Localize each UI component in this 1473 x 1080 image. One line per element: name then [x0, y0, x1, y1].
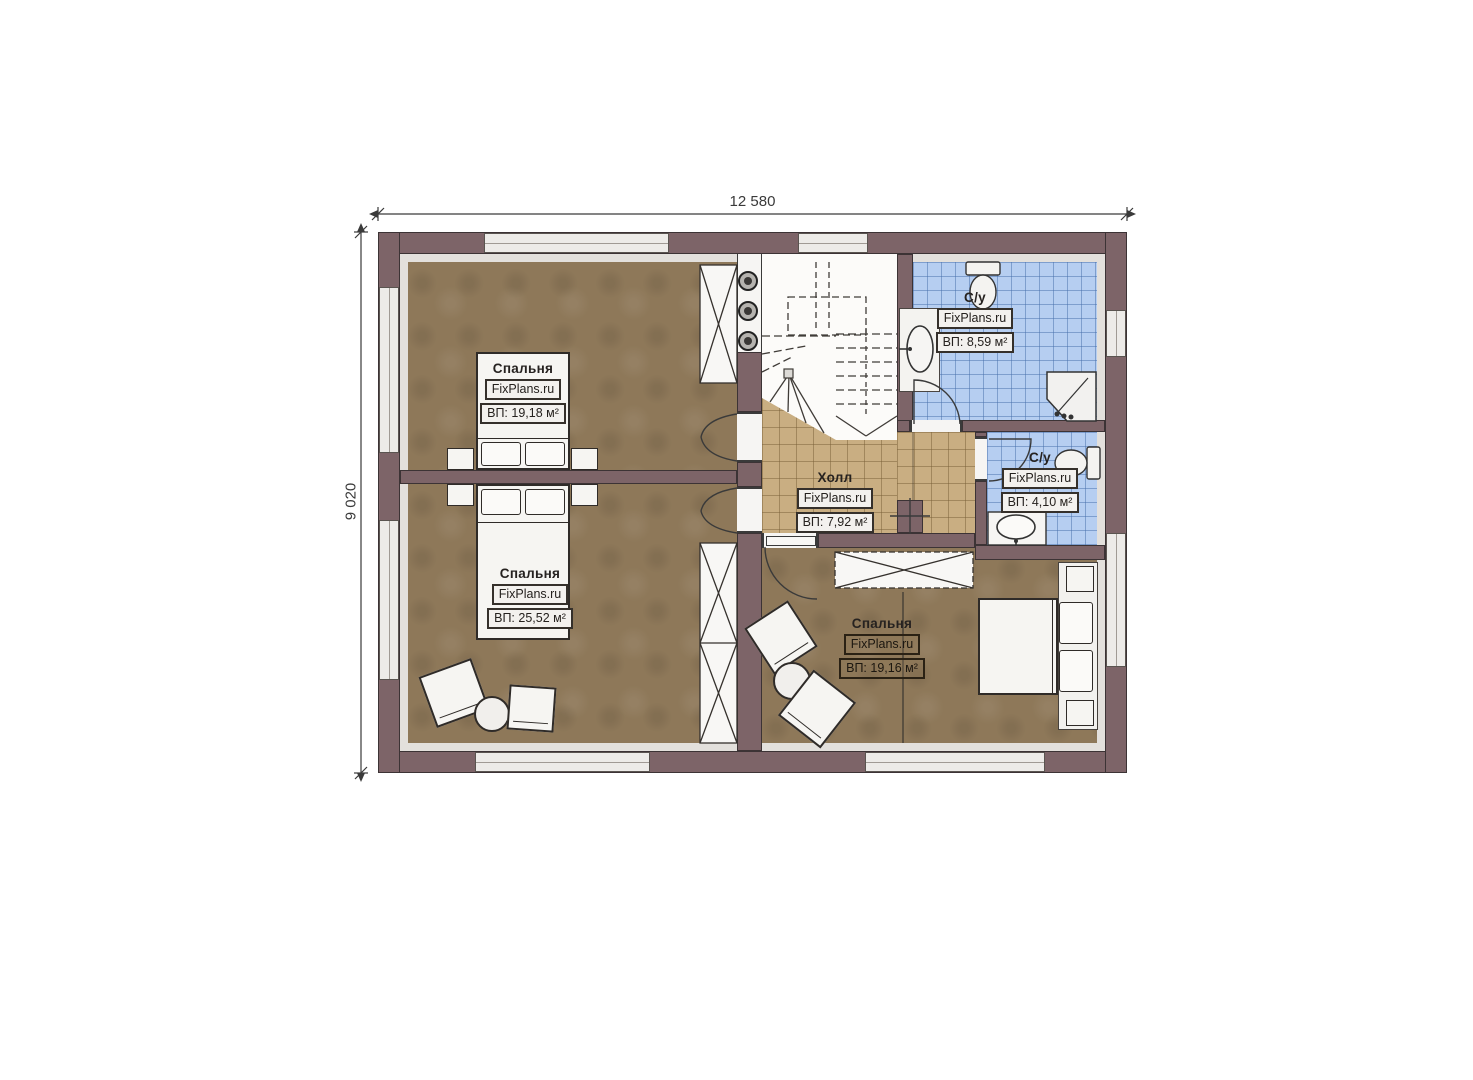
wall-bathroom-small-left-b [975, 481, 987, 545]
nightstand [1066, 700, 1094, 726]
pillow [1059, 602, 1093, 644]
label-bathroom-small: С/у FixPlans.ru ВП: 4,10 м² [992, 450, 1088, 513]
label-bedroom-right: Спальня FixPlans.ru ВП: 19,16 м² [828, 616, 936, 679]
wall-hall-bottom [818, 533, 975, 548]
room-title: С/у [964, 290, 986, 305]
dimension-width-label: 12 580 [690, 193, 815, 210]
window-right-upper [1106, 310, 1126, 357]
window-right-lower [1106, 533, 1126, 667]
label-bedroom-top-left: Спальня FixPlans.ru ВП: 19,18 м² [466, 361, 580, 424]
door-opening-bathroom-small [975, 437, 987, 481]
floor-plan-page: 12 580 9 020 Спальня FixPlans.ru ВП: 19,… [0, 0, 1473, 1080]
round-table [474, 696, 510, 732]
area-box: ВП: 19,18 м² [480, 403, 566, 424]
door-opening-bedroom-top-left [737, 412, 762, 462]
room-title: Спальня [493, 361, 553, 376]
brand-box: FixPlans.ru [937, 308, 1014, 329]
wall-hall-left-b [737, 462, 762, 487]
door-opening-bedroom-bottom-left [737, 487, 762, 533]
label-hall: Холл FixPlans.ru ВП: 7,92 м² [783, 470, 887, 533]
room-title: С/у [1029, 450, 1051, 465]
pillow [481, 442, 521, 466]
label-bedroom-bottom-left: Спальня FixPlans.ru ВП: 25,52 м² [472, 566, 588, 629]
window-top-left [484, 233, 669, 253]
pillow [525, 442, 565, 466]
nightstand [447, 484, 474, 506]
vent-niche [737, 254, 762, 352]
wall-bathroom-top-bottom-a [897, 420, 910, 432]
brand-box: FixPlans.ru [485, 379, 562, 400]
area-box: ВП: 19,16 м² [839, 658, 925, 679]
area-box: ВП: 8,59 м² [936, 332, 1015, 353]
room-title: Холл [817, 470, 852, 485]
nightstand [1066, 566, 1094, 592]
bed-right [978, 598, 1058, 695]
window-left-upper [379, 287, 399, 453]
window-left-lower [379, 520, 399, 680]
nightstand [571, 448, 598, 470]
pillow [1059, 650, 1093, 692]
wall-hall-left-a [737, 352, 762, 412]
nightstand [571, 484, 598, 506]
pillow [525, 489, 565, 515]
window-top-center [798, 233, 868, 253]
wall-bathroom-top-bottom-b [962, 420, 1105, 432]
brand-box: FixPlans.ru [1002, 468, 1079, 489]
window-bottom-right [865, 752, 1045, 772]
door-leaf-bedroom-right [766, 536, 816, 546]
brand-box: FixPlans.ru [844, 634, 921, 655]
window-bottom-left [475, 752, 650, 772]
label-bathroom-top: С/у FixPlans.ru ВП: 8,59 м² [925, 290, 1025, 353]
area-box: ВП: 25,52 м² [487, 608, 573, 629]
room-title: Спальня [852, 616, 912, 631]
area-box: ВП: 7,92 м² [796, 512, 875, 533]
brand-box: FixPlans.ru [797, 488, 874, 509]
area-box: ВП: 4,10 м² [1001, 492, 1080, 513]
door-opening-bathroom-top [910, 420, 962, 432]
brand-box: FixPlans.ru [492, 584, 569, 605]
wall-bathroom-small-bottom [975, 545, 1105, 560]
nightstand [447, 448, 474, 470]
wall-between-left-bedrooms [400, 470, 737, 484]
pillow [481, 489, 521, 515]
room-title: Спальня [500, 566, 560, 581]
chimney-block [897, 500, 923, 533]
chair [506, 684, 556, 732]
dimension-height-label: 9 020 [343, 442, 360, 562]
